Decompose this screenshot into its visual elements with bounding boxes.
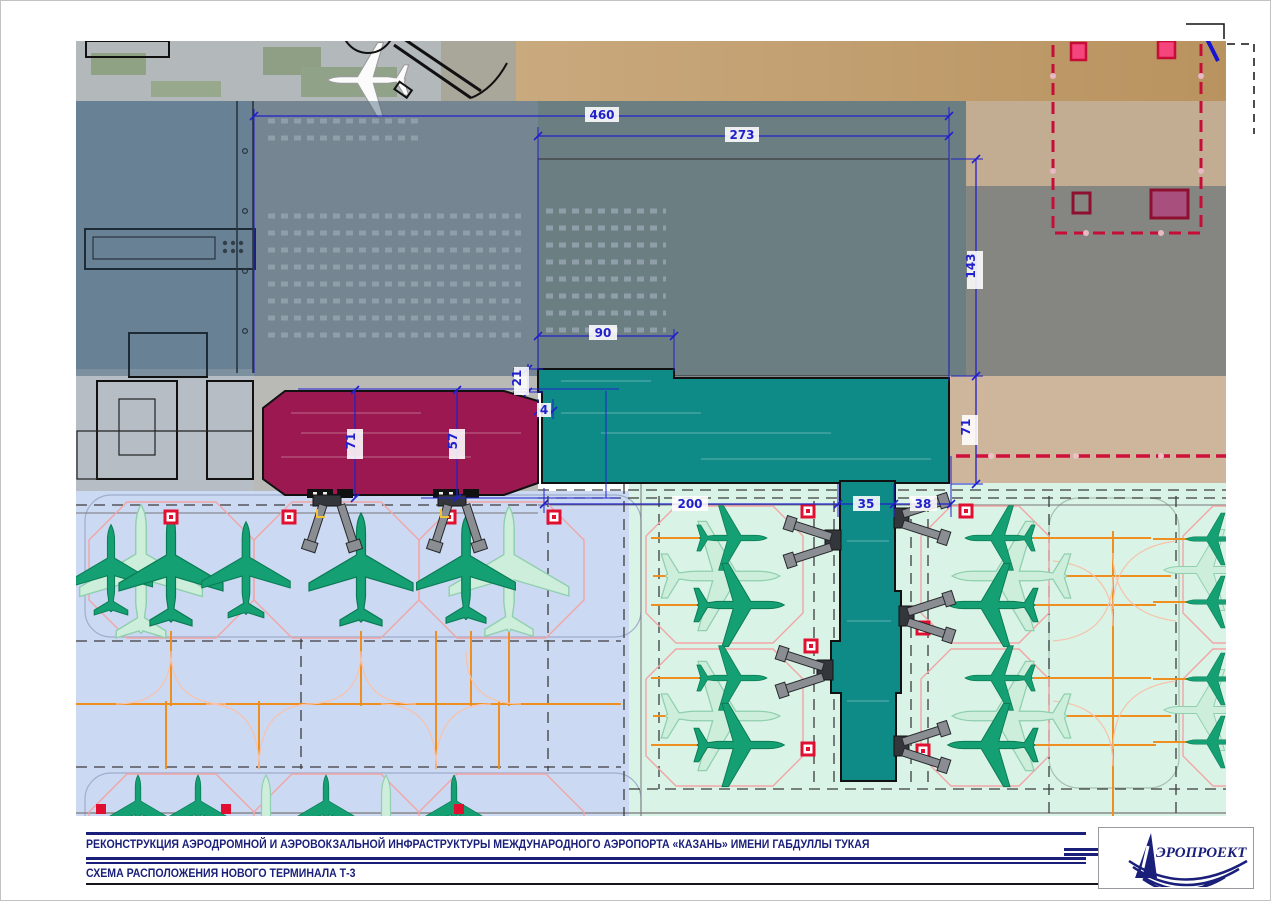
project-title: РЕКОНСТРУКЦИЯ АЭРОДРОМНОЙ И АЭРОВОКЗАЛЬН… xyxy=(86,837,869,851)
dim-notch-depth: 21 xyxy=(510,370,524,387)
boundary-object xyxy=(1151,190,1188,218)
logo-rule-a xyxy=(1064,848,1100,851)
dim-gap: 4 xyxy=(540,403,548,417)
title-rule-mid-b xyxy=(86,862,1086,864)
title-rule-mid-a xyxy=(86,857,1086,860)
boundary-object xyxy=(1071,43,1086,60)
dim-overall-width: 460 xyxy=(589,108,614,122)
boundary-object xyxy=(1158,41,1175,58)
company-logo: ЭРОПРОЕКТ xyxy=(1098,827,1254,889)
dim-existing-depth: 71 xyxy=(344,433,358,450)
dim-existing-hall-depth: 57 xyxy=(446,433,460,450)
dim-planned-width: 273 xyxy=(729,128,754,142)
logo-text: ЭРОПРОЕКТ xyxy=(1156,845,1247,861)
logo-rule-b xyxy=(1064,853,1100,856)
sheet-title: СХЕМА РАСПОЛОЖЕНИЯ НОВОГО ТЕРМИНАЛА Т-3 xyxy=(86,866,356,880)
dim-pier-width: 35 xyxy=(858,497,875,511)
dim-south-depth: 71 xyxy=(959,419,973,436)
dim-taxilane-width: 38 xyxy=(915,497,932,511)
dim-apron-front: 200 xyxy=(677,497,702,511)
drawing-sheet: 460 273 143 71 90 21 4 200 35 38 71 57 xyxy=(0,0,1271,901)
dim-planned-depth: 143 xyxy=(964,253,978,278)
aeroproject-logo: ЭРОПРОЕКТ xyxy=(1099,828,1252,887)
dim-notch-width: 90 xyxy=(595,326,612,340)
title-rule-top xyxy=(86,832,1086,835)
site-plan-drawing: 460 273 143 71 90 21 4 200 35 38 71 57 xyxy=(1,1,1271,901)
title-rule-bottom xyxy=(86,883,1254,885)
terminal-pier xyxy=(831,481,901,781)
